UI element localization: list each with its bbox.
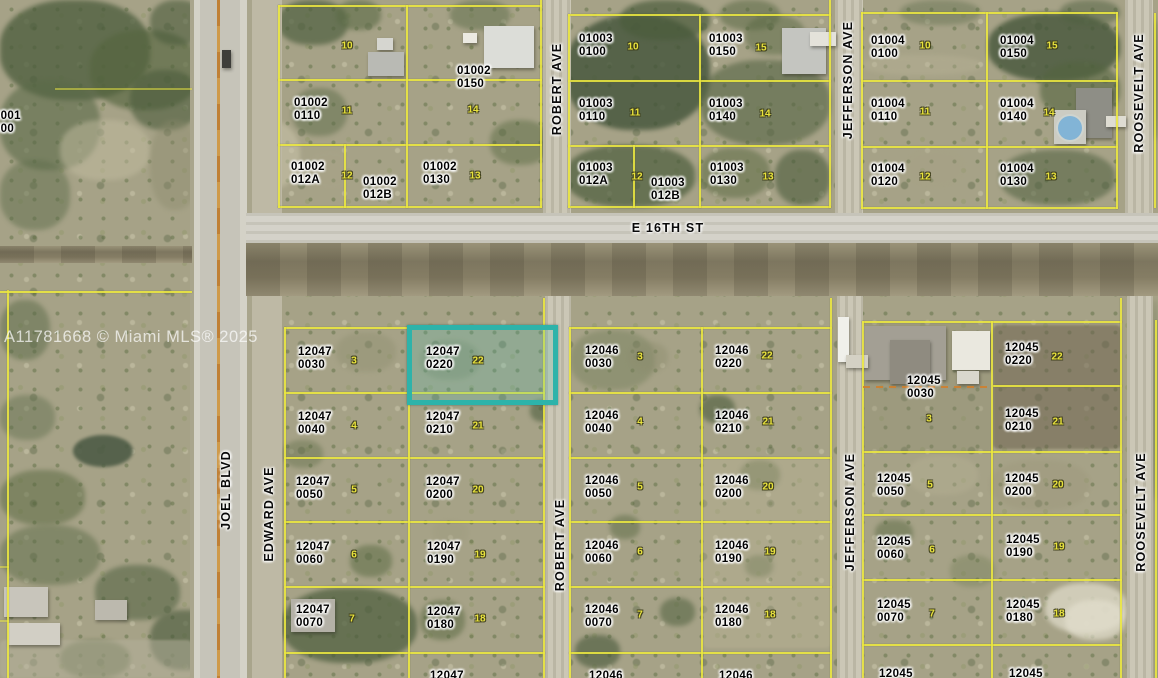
street-label: EDWARD AVE <box>262 466 276 561</box>
street-label: ROBERT AVE <box>553 499 567 592</box>
street-label: ROOSEVELT AVE <box>1132 33 1146 153</box>
street-label: JEFFERSON AVE <box>841 21 855 139</box>
street-label: JEFFERSON AVE <box>843 453 857 571</box>
street-label: ROBERT AVE <box>550 43 564 136</box>
street-label: JOEL BLVD <box>219 450 233 530</box>
street-label: E 16TH ST <box>632 221 705 235</box>
street-label: ROOSEVELT AVE <box>1134 452 1148 572</box>
watermark: A11781668 © Miami MLS® 2025 <box>4 328 258 347</box>
aerial-parcel-map[interactable]: 00001 000001002 011001002 015001002 012A… <box>0 0 1158 678</box>
